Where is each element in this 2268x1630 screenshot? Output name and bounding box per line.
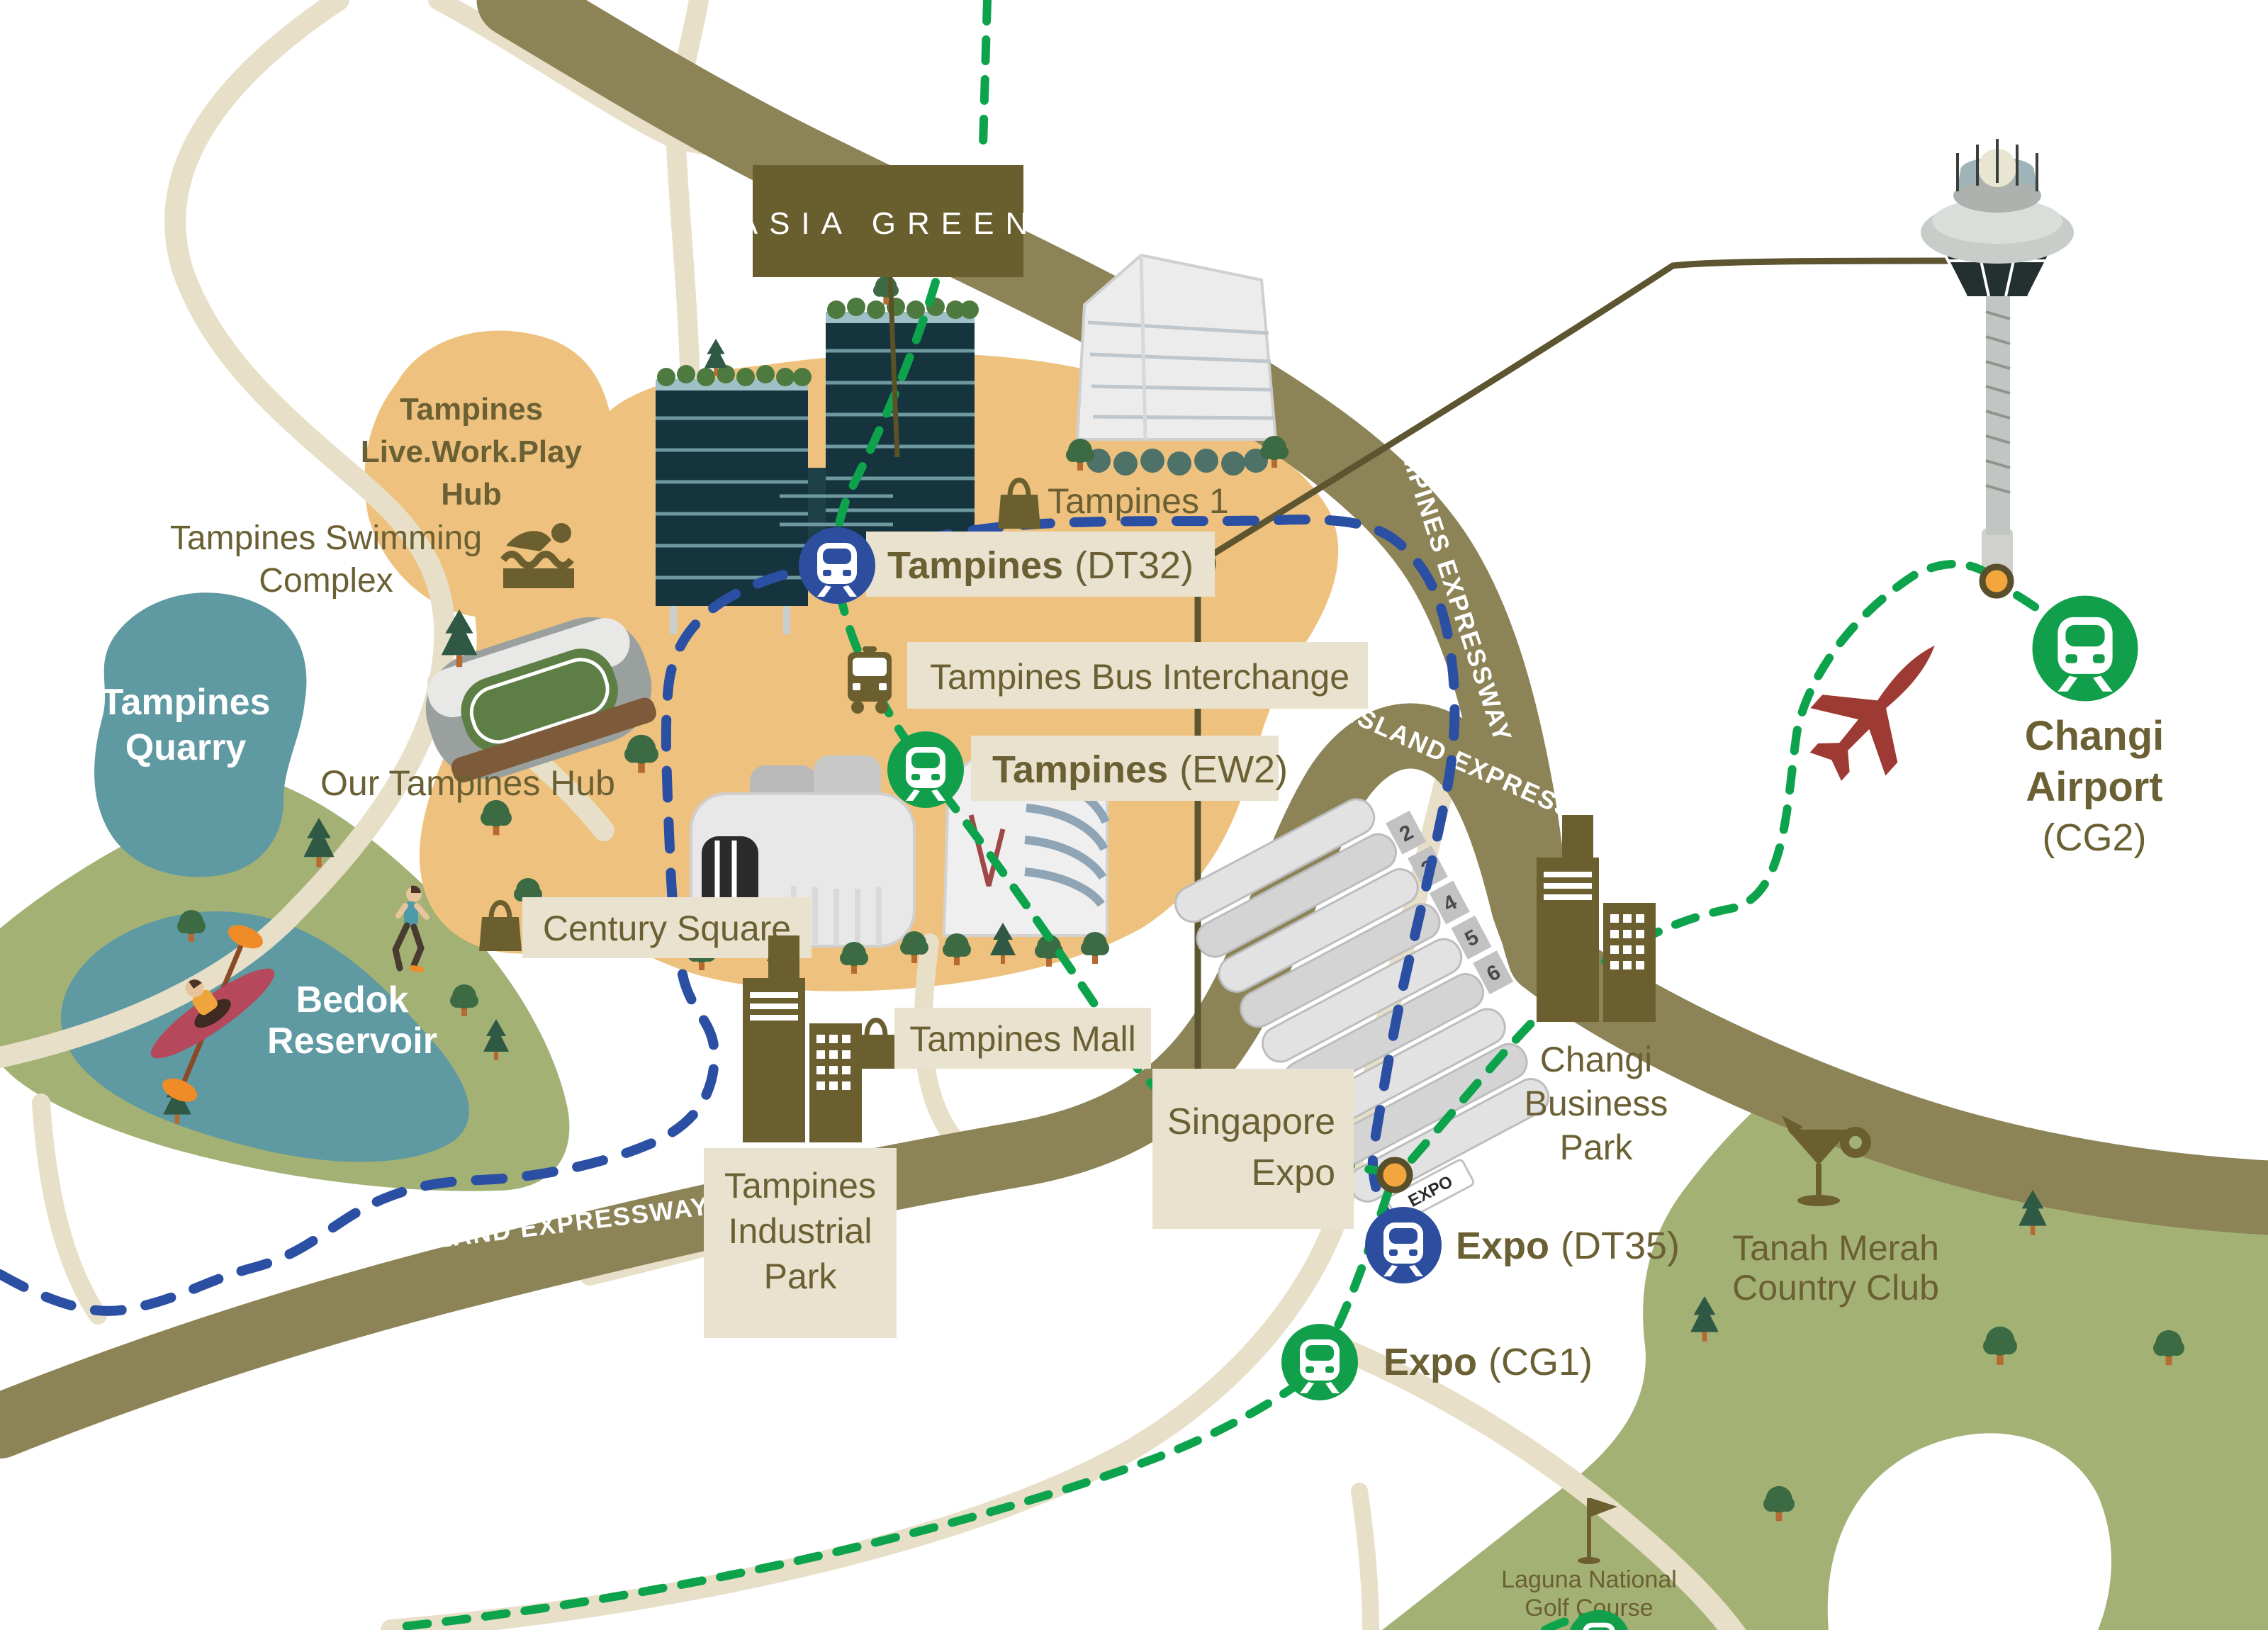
changi-airport-label: Changi Airport (CG2) (2025, 713, 2165, 859)
svg-text:Quarry: Quarry (125, 727, 247, 768)
svg-text:Bedok: Bedok (296, 979, 409, 1021)
svg-text:Park: Park (764, 1257, 838, 1296)
svg-text:Business: Business (1525, 1084, 1668, 1123)
interchange-dot-icon (1982, 567, 2011, 595)
ew2-label: Tampines(EW2) (992, 748, 1288, 791)
mrt-train-icon (1365, 1207, 1442, 1283)
mrt-train-icon (1281, 1324, 1358, 1400)
airplane-icon (1788, 612, 1972, 800)
svg-text:Laguna National: Laguna National (1501, 1566, 1677, 1593)
control-tower-icon (1921, 139, 2074, 578)
svg-text:Complex: Complex (259, 562, 393, 600)
svg-text:Changi: Changi (2025, 713, 2165, 759)
our-tampines-hub-label: Our Tampines Hub (320, 763, 615, 803)
svg-text:Changi: Changi (1540, 1040, 1652, 1079)
tpe-label: TAMPINES EXPRESSWAY (1385, 413, 1517, 746)
svg-text:Industrial: Industrial (729, 1211, 872, 1251)
singapore-expo-label-box (1152, 1069, 1354, 1229)
tampines-mall-label: Tampines Mall (909, 1019, 1136, 1059)
svg-text:Country Club: Country Club (1732, 1268, 1939, 1308)
century-square-label: Century Square (543, 909, 791, 948)
svg-text:Hub: Hub (441, 477, 502, 512)
svg-text:Expo: Expo (1251, 1152, 1335, 1193)
mrt-train-icon (799, 527, 875, 604)
cg1-label: Expo(CG1) (1383, 1341, 1593, 1383)
tampines-one-label: Tampines 1 (1048, 481, 1229, 521)
svg-text:Tampines: Tampines (400, 392, 543, 427)
dt32-label: Tampines(DT32) (887, 544, 1194, 587)
dt35-label: Expo(DT35) (1456, 1225, 1680, 1267)
mrt-train-icon (2032, 595, 2138, 701)
illustrated-location-map: PAN ISLAND EXPRESSWAY PAN ISLAND EXPRESS… (0, 0, 2268, 1630)
asia-green-banner-text: ASIA GREEN (737, 206, 1040, 241)
svg-text:(CG2): (CG2) (2043, 816, 2147, 859)
svg-text:Park: Park (1560, 1128, 1634, 1167)
bus-interchange-label: Tampines Bus Interchange (930, 657, 1349, 697)
map-canvas: PAN ISLAND EXPRESSWAY PAN ISLAND EXPRESS… (0, 0, 2268, 1630)
interchange-dot-icon (1380, 1160, 1410, 1190)
svg-text:Tampines: Tampines (724, 1166, 876, 1205)
svg-text:Tampines Swimming: Tampines Swimming (170, 519, 482, 557)
changi-business-park-label: Changi Business Park (1525, 1040, 1668, 1167)
svg-text:Singapore: Singapore (1167, 1101, 1335, 1142)
tanah-merah-label: Tanah Merah Country Club (1732, 1228, 1939, 1308)
mrt-train-icon (887, 731, 964, 808)
svg-text:Reservoir: Reservoir (267, 1021, 437, 1062)
svg-text:Live.Work.Play: Live.Work.Play (361, 434, 583, 469)
svg-text:Tampines: Tampines (101, 682, 271, 723)
svg-text:Airport: Airport (2026, 764, 2162, 810)
svg-text:Tanah Merah: Tanah Merah (1732, 1228, 1939, 1268)
